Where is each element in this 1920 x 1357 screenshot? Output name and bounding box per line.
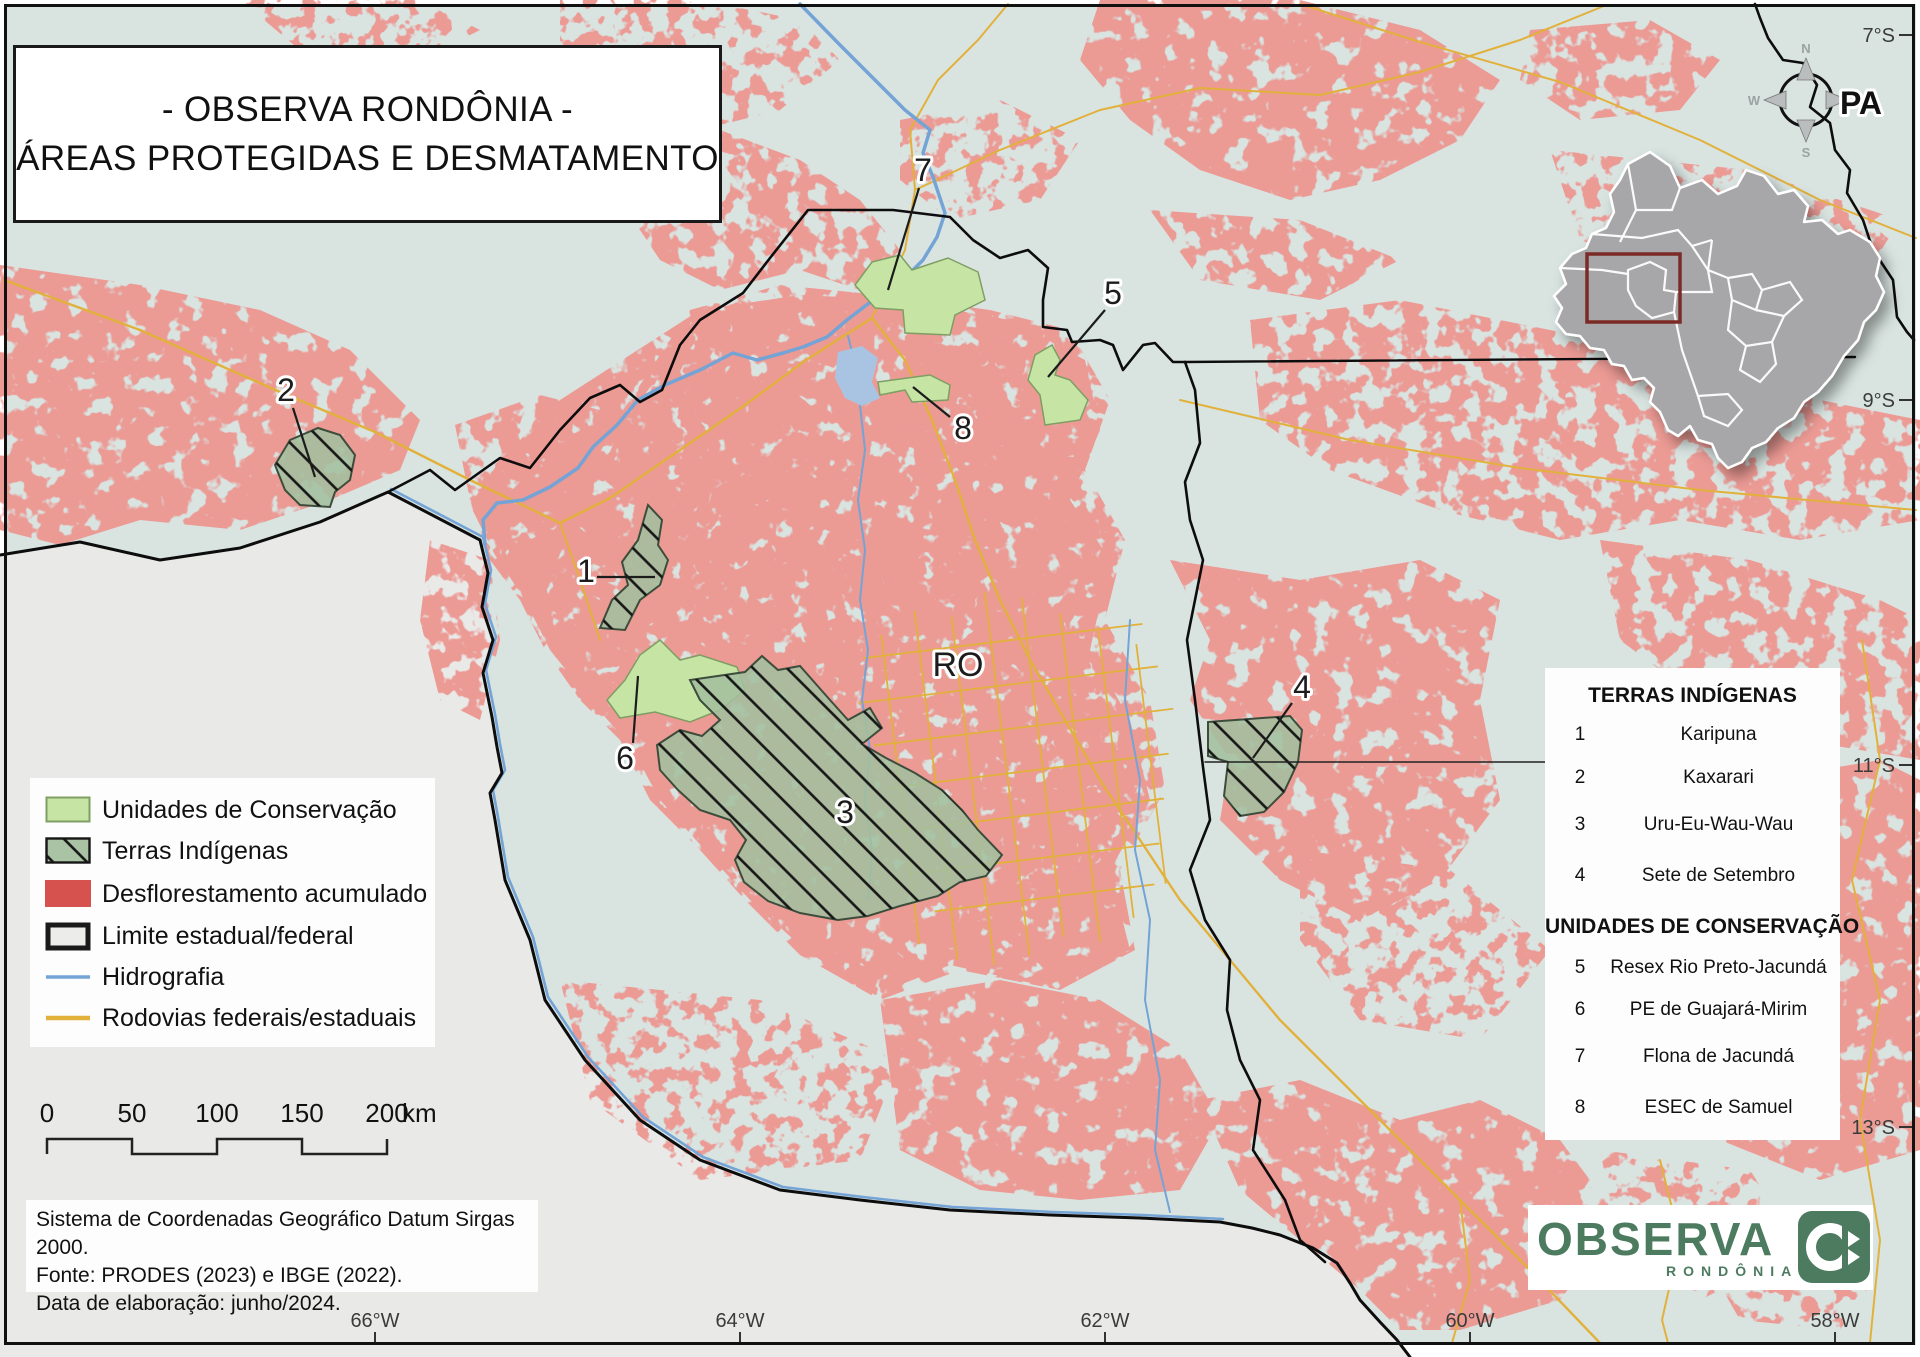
panel-row-number: 8: [1569, 1096, 1591, 1120]
state-boundary-swatch-icon: [45, 922, 91, 951]
map-label-2: 2: [277, 372, 295, 408]
compass-s: S: [1802, 145, 1811, 160]
lon-label-62w: 62°W: [1080, 1310, 1129, 1332]
hydrography-swatch-icon: [45, 963, 91, 990]
map-label-5: 5: [1104, 275, 1122, 311]
panel-row-number: 3: [1569, 813, 1591, 837]
map-label-3: 3: [836, 794, 854, 830]
panel-title-terras-indigenas: TERRAS INDÍGENAS: [1545, 684, 1840, 708]
panel-row-esec-samuel: 8 ESEC de Samuel: [1545, 1096, 1840, 1120]
lon-label-64w: 64°W: [715, 1310, 764, 1332]
panel-row-number: 2: [1569, 766, 1591, 790]
legend-label: Unidades de Conservação: [102, 793, 397, 827]
lat-label-11s: 11°S: [1853, 755, 1895, 777]
panel-row-kaxarari: 2 Kaxarari: [1545, 766, 1840, 790]
panel-title-unidades-conservacao: UNIDADES DE CONSERVAÇÃO: [1545, 915, 1840, 939]
lat-label-7s: 7°S: [1863, 25, 1895, 47]
panel-row-name: PE de Guajará-Mirim: [1607, 998, 1830, 1022]
map-label-1: 1: [577, 553, 595, 589]
map-title-line2: ÁREAS PROTEGIDAS E DESMATAMENTO: [16, 139, 719, 179]
protected-areas-panel: TERRAS INDÍGENAS 1 Karipuna 2 Kaxarari 3…: [1545, 668, 1840, 1140]
conservation-units-swatch-icon: [45, 796, 91, 823]
legend-item-conservation-units: Unidades de Conservação: [30, 793, 435, 827]
compass-w: W: [1748, 93, 1761, 108]
logo-brand-text: OBSERVA: [1537, 1212, 1774, 1266]
map-title-line1: - OBSERVA RONDÔNIA -: [162, 90, 573, 130]
panel-row-number: 6: [1569, 998, 1591, 1022]
legend-label: Limite estadual/federal: [102, 919, 354, 953]
panel-row-name: Uru-Eu-Wau-Wau: [1607, 813, 1830, 837]
panel-row-name: ESEC de Samuel: [1607, 1096, 1830, 1120]
panel-row-uru-eu-wau-wau: 3 Uru-Eu-Wau-Wau: [1545, 813, 1840, 837]
source-note: Sistema de Coordenadas Geográfico Datum …: [26, 1200, 538, 1292]
map-label-7: 7: [914, 152, 932, 188]
panel-row-name: Flona de Jacundá: [1607, 1045, 1830, 1069]
compass-n: N: [1801, 41, 1810, 56]
lon-label-58w: 58°W: [1810, 1310, 1859, 1332]
legend-label: Rodovias federais/estaduais: [102, 1001, 416, 1035]
legend-item-deforestation: Desflorestamento acumulado: [30, 877, 435, 911]
source-line3: Data de elaboração: junho/2024.: [36, 1290, 538, 1318]
legend: Unidades de Conservação Terras Indígenas…: [30, 778, 435, 1047]
panel-row-name: Karipuna: [1607, 723, 1830, 747]
legend-item-state-boundary: Limite estadual/federal: [30, 919, 435, 953]
legend-label: Terras Indígenas: [102, 834, 288, 868]
state-label-ro: RO: [933, 646, 984, 684]
legend-item-roads: Rodovias federais/estaduais: [30, 1001, 435, 1035]
source-line1: Sistema de Coordenadas Geográfico Datum …: [36, 1206, 538, 1262]
panel-row-number: 1: [1569, 723, 1591, 747]
scale-bar-graphic: [36, 1098, 476, 1160]
legend-item-hydrography: Hidrografia: [30, 960, 435, 994]
panel-row-number: 4: [1569, 864, 1591, 888]
panel-row-number: 5: [1569, 956, 1591, 980]
state-label-pa: PA: [1840, 85, 1882, 121]
logo-sub-text: RONDÔNIA: [1666, 1263, 1786, 1279]
legend-label: Desflorestamento acumulado: [102, 877, 427, 911]
legend-label: Hidrografia: [102, 960, 224, 994]
panel-row-name: Sete de Setembro: [1607, 864, 1830, 888]
map-poster: 1 2 3 4 5 6 7 8 RO 7°S 9°S 11°S 13°S 66°…: [0, 0, 1920, 1357]
map-label-6: 6: [616, 740, 634, 776]
panel-row-pe-guajara-mirim: 6 PE de Guajará-Mirim: [1545, 998, 1840, 1022]
panel-row-sete-de-setembro: 4 Sete de Setembro: [1545, 864, 1840, 888]
map-label-4: 4: [1293, 669, 1311, 705]
legend-item-indigenous-lands: Terras Indígenas: [30, 834, 435, 868]
panel-row-flona-jacunda: 7 Flona de Jacundá: [1545, 1045, 1840, 1069]
panel-row-karipuna: 1 Karipuna: [1545, 723, 1840, 747]
source-line2: Fonte: PRODES (2023) e IBGE (2022).: [36, 1262, 538, 1290]
panel-row-resex-rio-preto-jacunda: 5 Resex Rio Preto-Jacundá: [1545, 956, 1840, 980]
map-label-8: 8: [954, 410, 972, 446]
logo-eye-icon: [1798, 1211, 1870, 1283]
deforestation-swatch-icon: [45, 880, 91, 907]
panel-row-number: 7: [1569, 1045, 1591, 1069]
roads-swatch-icon: [45, 1004, 91, 1031]
lat-label-9s: 9°S: [1863, 390, 1895, 412]
observa-rondonia-logo: OBSERVA RONDÔNIA: [1528, 1205, 1873, 1290]
panel-row-name: Resex Rio Preto-Jacundá: [1607, 956, 1830, 980]
title-box: - OBSERVA RONDÔNIA - ÁREAS PROTEGIDAS E …: [13, 45, 722, 223]
lon-label-60w: 60°W: [1445, 1310, 1494, 1332]
scale-bar: 0 50 100 150 200 km: [36, 1098, 476, 1160]
lat-label-13s: 13°S: [1851, 1117, 1895, 1139]
indigenous-lands-swatch-icon: [45, 837, 91, 864]
panel-row-name: Kaxarari: [1607, 766, 1830, 790]
